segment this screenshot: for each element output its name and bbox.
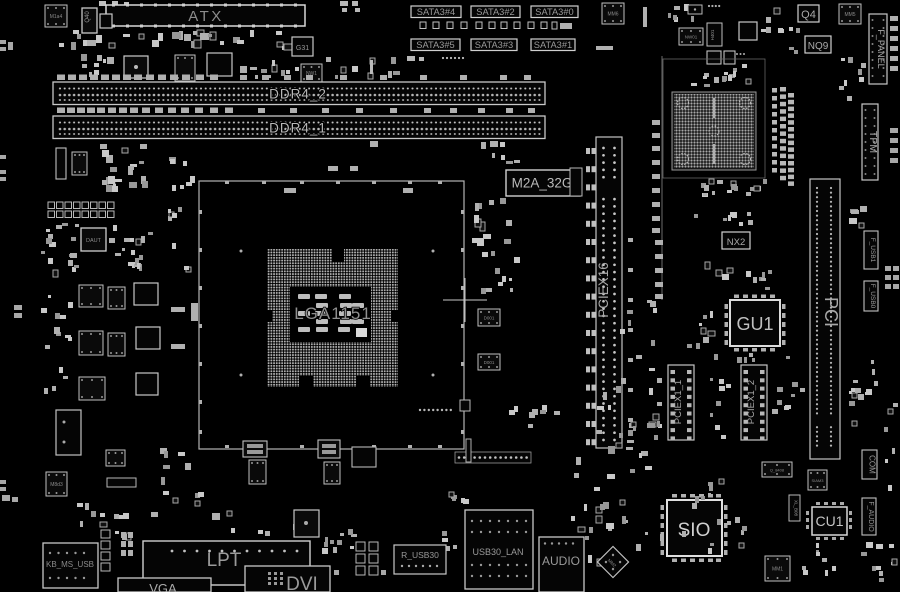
svg-text:LPT: LPT [207,550,242,571]
svg-text:DAUT: DAUT [86,238,102,244]
svg-text:DDR4_1: DDR4_1 [269,121,327,136]
svg-text:NW01: NW01 [685,35,698,40]
svg-text:M8d3: M8d3 [50,482,63,488]
svg-text:F_USB0: F_USB0 [869,284,876,309]
svg-text:SATA3#1: SATA3#1 [534,40,572,50]
svg-text:VGA: VGA [149,581,177,592]
svg-text:MM1: MM1 [772,567,783,573]
svg-text:SATA3#3: SATA3#3 [475,40,513,50]
svg-text:H401: H401 [710,29,715,40]
svg-text:Q4: Q4 [801,9,816,21]
svg-text:ATX: ATX [188,8,224,25]
svg-text:G31: G31 [296,45,309,52]
svg-text:MM6: MM6 [607,12,618,18]
svg-text:F_USB1: F_USB1 [869,238,876,263]
svg-text:USB30_LAN: USB30_LAN [472,547,523,557]
svg-text:AUDIO: AUDIO [542,554,580,568]
svg-text:M2A_32G: M2A_32G [512,176,573,191]
svg-text:SIO: SIO [678,520,711,541]
svg-text:D001: D001 [484,360,495,365]
svg-text:M1a4: M1a4 [50,14,63,20]
svg-text:COM: COM [868,455,877,474]
svg-text:D001: D001 [484,316,495,321]
svg-text:F_AUDIO: F_AUDIO [867,501,874,532]
svg-text:CU1: CU1 [815,513,843,529]
svg-text:SATA3#5: SATA3#5 [416,40,454,50]
svg-text:LGA1151: LGA1151 [294,304,372,323]
svg-text:NX2: NX2 [727,237,745,248]
svg-text:R_USB30: R_USB30 [401,550,439,560]
svg-text:SATA3#4: SATA3#4 [417,7,455,17]
svg-text:KB_MS_USB: KB_MS_USB [46,560,94,569]
svg-text:DVI: DVI [286,574,318,592]
svg-text:NQ9: NQ9 [808,41,829,52]
svg-text:F_PANEL: F_PANEL [876,29,886,68]
svg-text:SATA3#0: SATA3#0 [535,7,573,17]
svg-text:PCIEX1_1: PCIEX1_1 [673,380,684,424]
svg-text:PCIEX16: PCIEX16 [596,262,611,318]
svg-text:XL_B08: XL_B08 [794,500,799,517]
svg-text:DDR4_2: DDR4_2 [269,87,327,102]
svg-text:GU1: GU1 [736,314,773,334]
svg-text:SIAM3: SIAM3 [811,478,824,483]
svg-text:MM5: MM5 [844,12,855,18]
svg-text:Q_8408: Q_8408 [770,468,785,473]
svg-text:PCI: PCI [821,297,841,327]
svg-text:TPM: TPM [867,131,879,153]
svg-text:SATA3#2: SATA3#2 [476,7,514,17]
svg-text:PCIEX1_2: PCIEX1_2 [746,380,757,424]
svg-text:Q40: Q40 [85,11,91,23]
